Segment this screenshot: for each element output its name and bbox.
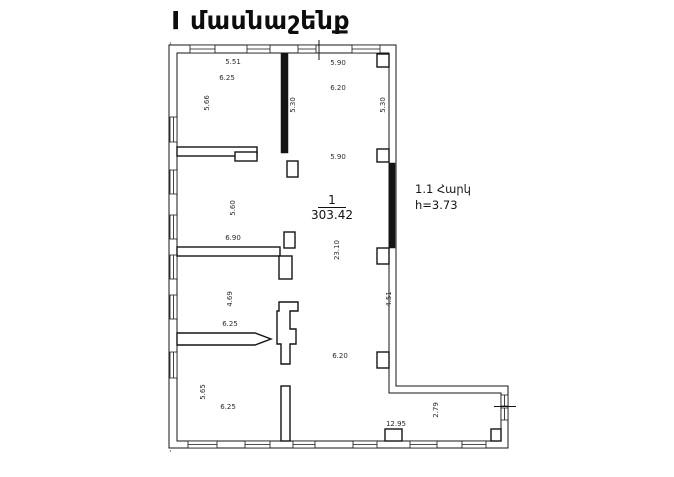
dimension-label: 6.90 — [225, 234, 241, 242]
dimension-labels: 5.516.255.665.906.205.305.305.905.606.90… — [199, 58, 440, 428]
right-wall-solid-segment — [389, 163, 395, 248]
dimension-label: 6.20 — [330, 84, 346, 92]
room-number: 1 — [328, 193, 336, 207]
pilaster-right-wall — [377, 352, 389, 368]
dimension-label: 5.60 — [229, 200, 237, 216]
room-divider-1 — [177, 147, 257, 161]
dimension-label: 6.20 — [332, 352, 348, 360]
dimension-label: 5.30 — [289, 97, 297, 113]
pilaster-right-wall — [377, 248, 389, 264]
dimension-label: 4.69 — [226, 291, 234, 307]
floor-note: 1.1 Հարկ h=3.73 — [415, 182, 471, 212]
pilaster-right-wall — [377, 149, 389, 162]
corner-step — [491, 429, 501, 441]
divider-wall-step — [235, 152, 257, 161]
dimension-label: 5.65 — [199, 384, 207, 400]
dimension-label: 2.79 — [432, 402, 440, 418]
partition-wall-vertical — [281, 53, 288, 153]
floor-note-line2: h=3.73 — [415, 198, 458, 212]
pilaster — [279, 256, 292, 279]
floor-plan-page: Ι մասնաշենք — [0, 0, 674, 477]
dimension-label: 5.90 — [330, 153, 346, 161]
dimension-label: 6.25 — [219, 74, 235, 82]
room-divider-3 — [177, 333, 271, 345]
pilaster — [287, 161, 298, 177]
pilaster-right-wall — [377, 54, 389, 67]
dimension-label: 6.25 — [222, 320, 238, 328]
partition-wall-lower — [281, 386, 290, 441]
dimension-label: 5.30 — [379, 97, 387, 113]
dimension-label: 12.95 — [386, 420, 406, 428]
room-area: 303.42 — [311, 208, 353, 222]
room-divider-2 — [177, 247, 280, 256]
floor-note-line1: 1.1 Հարկ — [415, 182, 471, 196]
dimension-label: 5.51 — [225, 58, 241, 66]
dimension-label: 4.51 — [385, 291, 393, 307]
dimension-label: 5.90 — [330, 59, 346, 67]
entry-step — [385, 429, 402, 441]
dimension-label: 6.25 — [220, 403, 236, 411]
shaft-block — [277, 302, 298, 364]
dimension-label: 5.66 — [203, 95, 211, 111]
pilaster — [284, 232, 295, 248]
dimension-label: 23.10 — [333, 240, 341, 260]
room-label: 1 303.42 — [311, 193, 353, 222]
floor-plan-drawing: 1 303.42 1.1 Հարկ h=3.73 5.516.255.665.9… — [0, 0, 674, 477]
